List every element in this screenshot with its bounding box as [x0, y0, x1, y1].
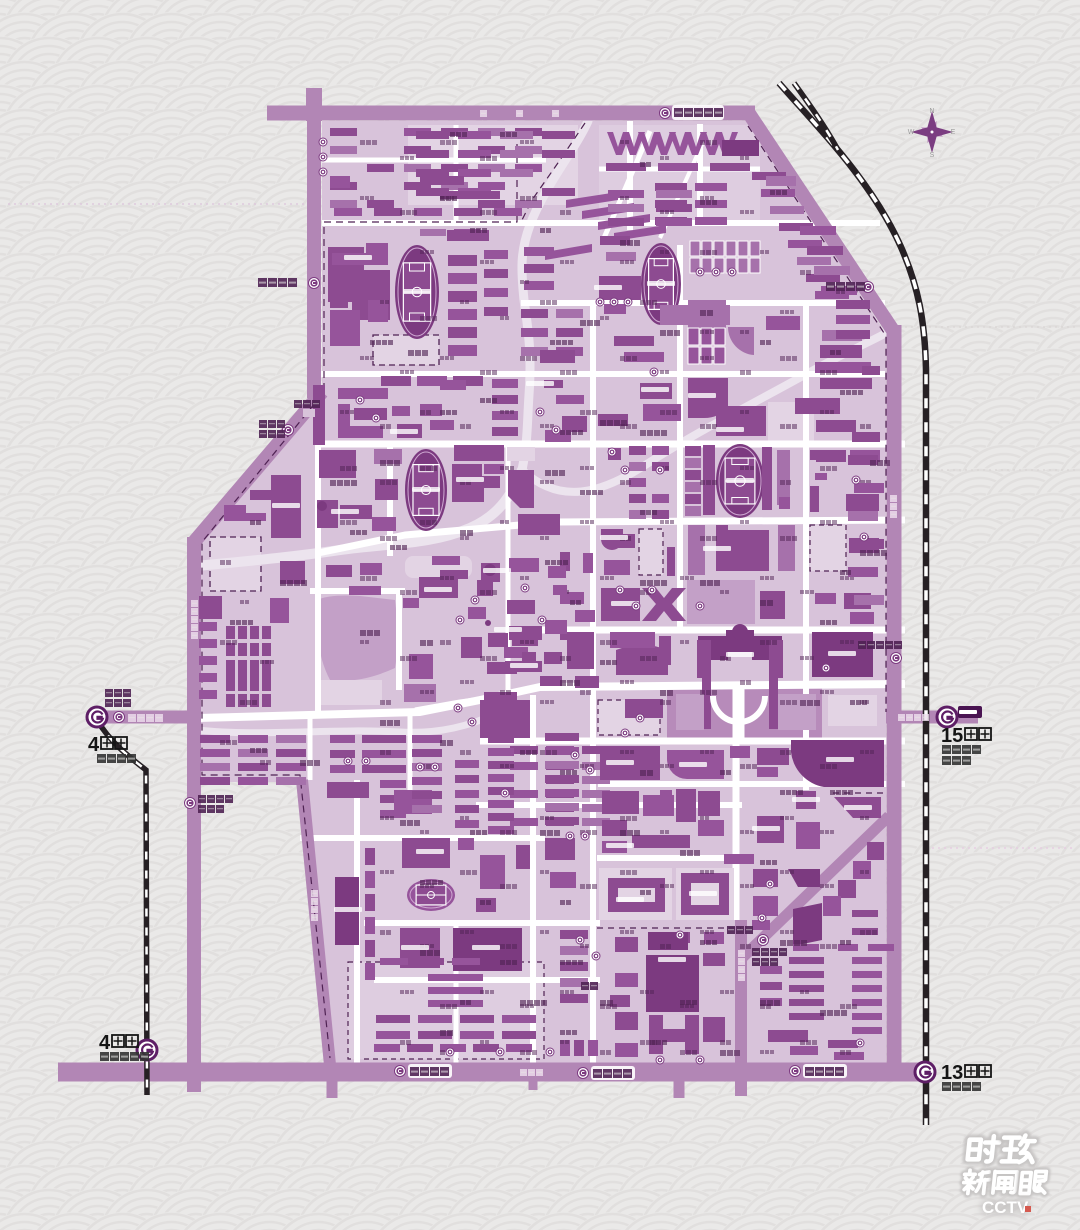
svg-text:15: 15: [941, 725, 963, 747]
svg-text:W: W: [908, 129, 915, 136]
svg-text:13: 13: [941, 1062, 963, 1084]
svg-text:4: 4: [99, 1032, 111, 1054]
svg-text:S: S: [930, 152, 935, 159]
svg-text:N: N: [929, 108, 934, 115]
svg-text:E: E: [951, 129, 956, 136]
svg-text:4: 4: [88, 734, 100, 756]
svg-text:CCTV: CCTV: [982, 1198, 1029, 1217]
